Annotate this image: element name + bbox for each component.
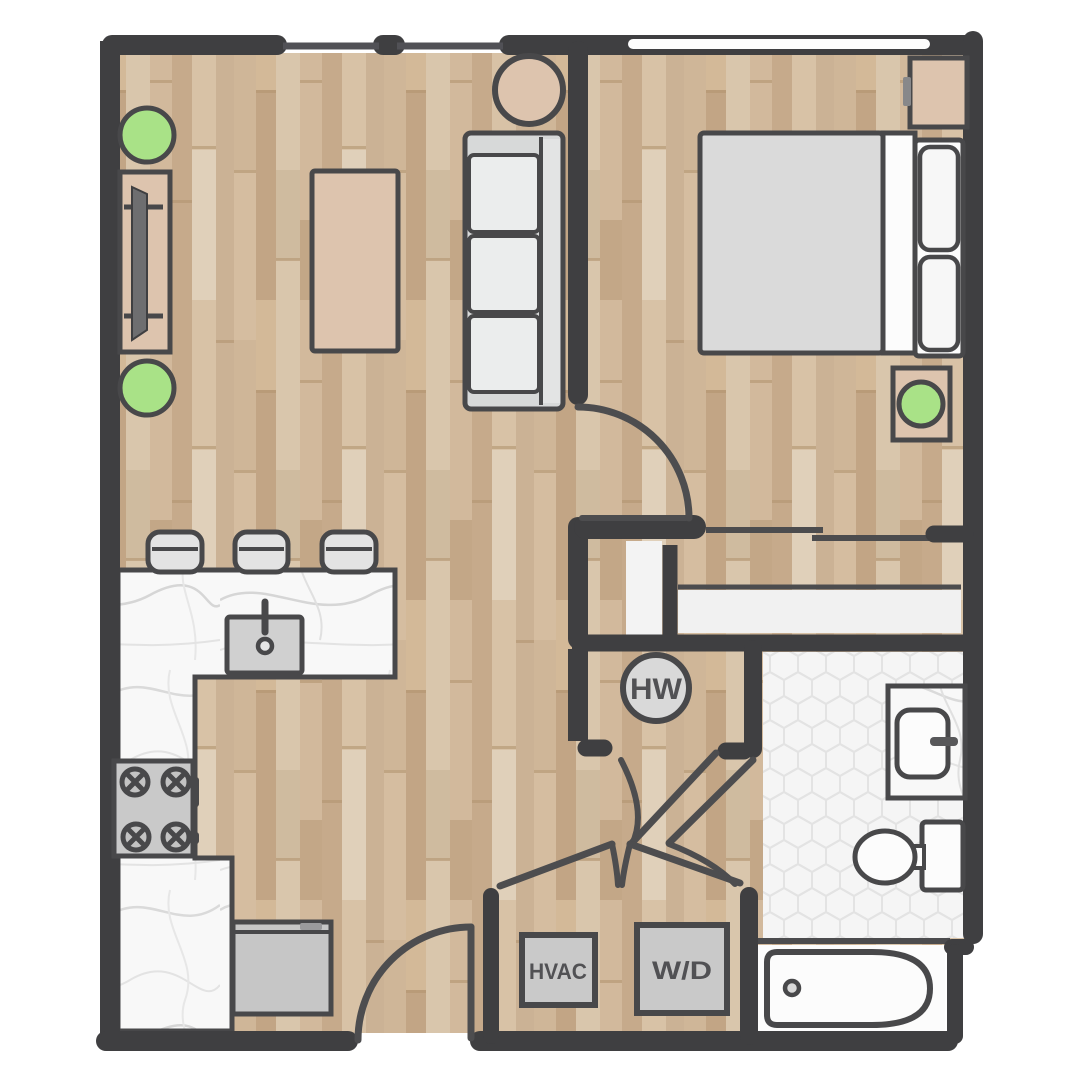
bar-stool — [235, 532, 288, 572]
sofa — [465, 133, 563, 409]
drain — [258, 639, 272, 653]
bar-stool — [148, 532, 202, 572]
sofa-cushion — [469, 155, 539, 232]
toilet-tank — [922, 822, 963, 890]
window-bedroom — [628, 39, 930, 49]
stove — [114, 761, 199, 856]
bar-stools — [148, 532, 376, 572]
stove-handle — [191, 832, 199, 844]
bar-stool — [322, 532, 376, 572]
faucet — [930, 737, 958, 746]
sofa-cushion — [469, 316, 539, 392]
hvac-label: HVAC — [529, 959, 587, 984]
fridge-handle — [300, 923, 322, 930]
mattress — [700, 133, 883, 353]
bed-sheet-band — [883, 133, 915, 353]
bedroom-closet-shelf — [678, 590, 961, 633]
stove-handle — [191, 777, 199, 807]
round-side-table — [495, 56, 563, 124]
bathtub — [767, 952, 930, 1025]
pillow — [920, 147, 958, 250]
washer-dryer-label: W/D — [652, 957, 712, 985]
sofa-cushion — [469, 236, 539, 312]
tub-drain — [785, 981, 799, 995]
plant — [120, 108, 174, 162]
plant — [120, 361, 174, 415]
bathroom-vanity — [888, 686, 965, 798]
refrigerator — [233, 922, 331, 1014]
nightstand-handle — [903, 77, 911, 106]
floor-plan: HW HVAC W/D — [0, 0, 1089, 1089]
hall-niche — [626, 541, 662, 636]
tv — [132, 187, 147, 340]
toilet-bowl — [855, 831, 915, 883]
pillow — [920, 257, 958, 350]
floor-plan-canvas: HW HVAC W/D — [0, 0, 1089, 1089]
plant — [899, 382, 943, 426]
hot-water-label: HW — [630, 673, 683, 706]
bed — [700, 133, 963, 356]
coffee-table — [312, 171, 398, 351]
nightstand — [910, 58, 967, 127]
sofa-backrest — [543, 139, 560, 403]
